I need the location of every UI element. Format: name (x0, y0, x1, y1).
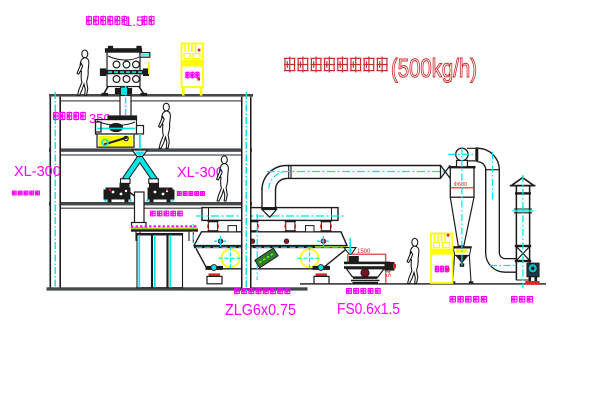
svg-text:Φ600: Φ600 (454, 182, 468, 188)
svg-text:ZLG6x0.75: ZLG6x0.75 (225, 302, 296, 319)
svg-text:XL-300: XL-300 (14, 164, 61, 180)
svg-text:1500: 1500 (357, 249, 371, 255)
svg-text:(500kg/h): (500kg/h) (391, 53, 477, 83)
svg-text:1.5: 1.5 (125, 13, 145, 29)
svg-text:FS0.6x1.5: FS0.6x1.5 (337, 301, 400, 318)
